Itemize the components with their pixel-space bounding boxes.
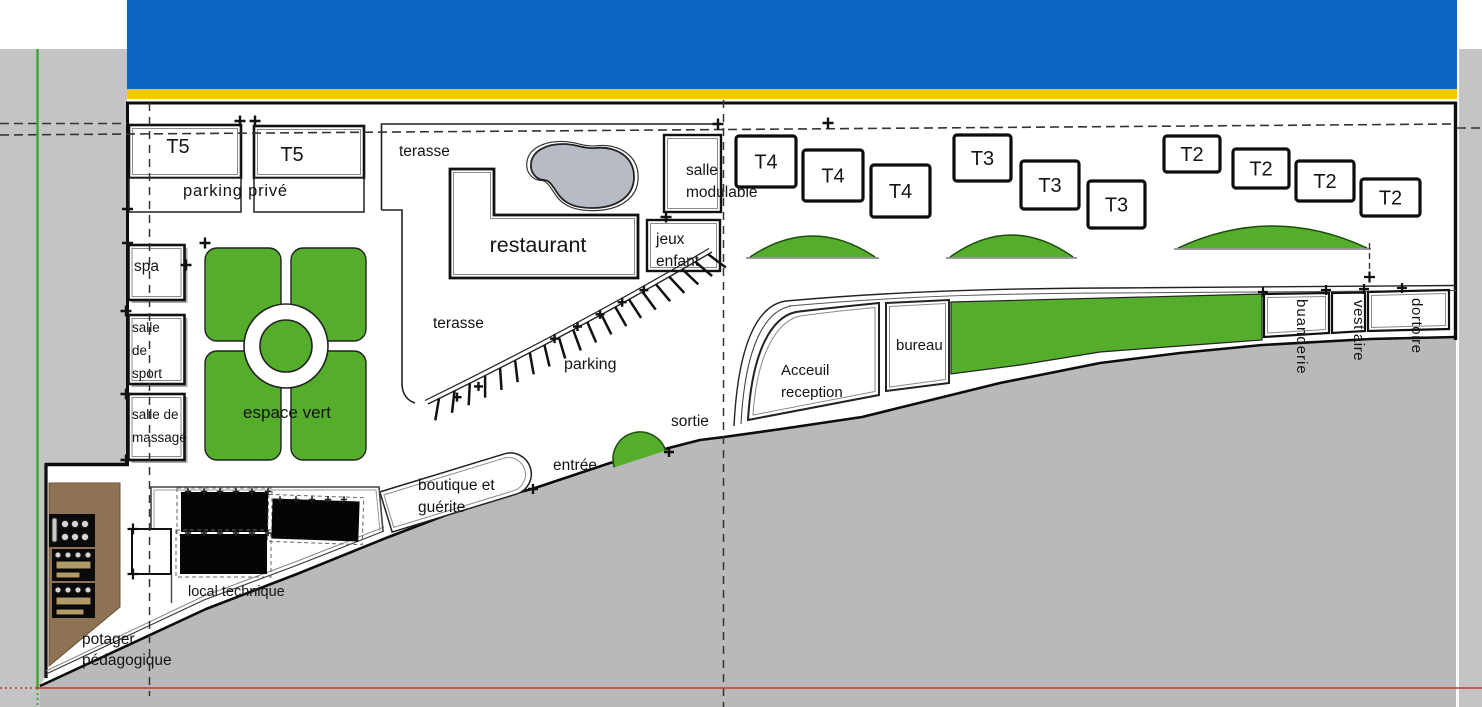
svg-text:potager: potager [82, 631, 135, 648]
svg-text:T3: T3 [1038, 175, 1061, 197]
svg-text:jeux: jeux [655, 231, 685, 248]
svg-text:guérite: guérite [418, 499, 465, 516]
svg-text:de: de [132, 343, 147, 358]
svg-text:T2: T2 [1379, 188, 1402, 210]
svg-text:T5: T5 [166, 136, 189, 158]
svg-text:sport: sport [132, 366, 162, 381]
svg-text:salle de: salle de [132, 407, 179, 422]
svg-text:T4: T4 [889, 181, 912, 203]
svg-text:T4: T4 [821, 166, 844, 188]
svg-text:T2: T2 [1180, 144, 1203, 166]
svg-text:salle: salle [686, 162, 718, 179]
svg-text:T3: T3 [1105, 195, 1128, 217]
svg-text:T2: T2 [1313, 171, 1336, 193]
svg-text:buanderie: buanderie [1293, 299, 1310, 375]
svg-text:restaurant: restaurant [490, 233, 587, 257]
svg-text:boutique et: boutique et [418, 477, 495, 494]
svg-text:dortoire: dortoire [1408, 298, 1425, 354]
svg-text:sortie: sortie [671, 413, 709, 430]
svg-text:T5: T5 [280, 144, 303, 166]
svg-text:terasse: terasse [399, 143, 450, 160]
svg-text:reception: reception [781, 384, 843, 401]
svg-text:salle: salle [132, 320, 160, 335]
svg-text:T4: T4 [754, 152, 777, 174]
svg-text:entrée: entrée [553, 457, 597, 474]
svg-text:T2: T2 [1249, 159, 1272, 181]
svg-text:bureau: bureau [896, 337, 943, 354]
svg-text:pédagogique: pédagogique [82, 652, 172, 669]
svg-text:T3: T3 [971, 148, 994, 170]
svg-text:Acceuil: Acceuil [781, 362, 829, 379]
svg-text:massage: massage [132, 430, 187, 445]
svg-text:terasse: terasse [433, 315, 484, 332]
svg-text:spa: spa [134, 258, 159, 275]
svg-text:parking privé: parking privé [183, 182, 288, 200]
svg-text:vestiaire: vestiaire [1350, 300, 1367, 361]
svg-text:espace vert: espace vert [243, 403, 331, 422]
svg-text:parking: parking [564, 356, 616, 373]
svg-text:enfant: enfant [656, 253, 700, 270]
svg-text:local technique: local technique [188, 584, 285, 600]
